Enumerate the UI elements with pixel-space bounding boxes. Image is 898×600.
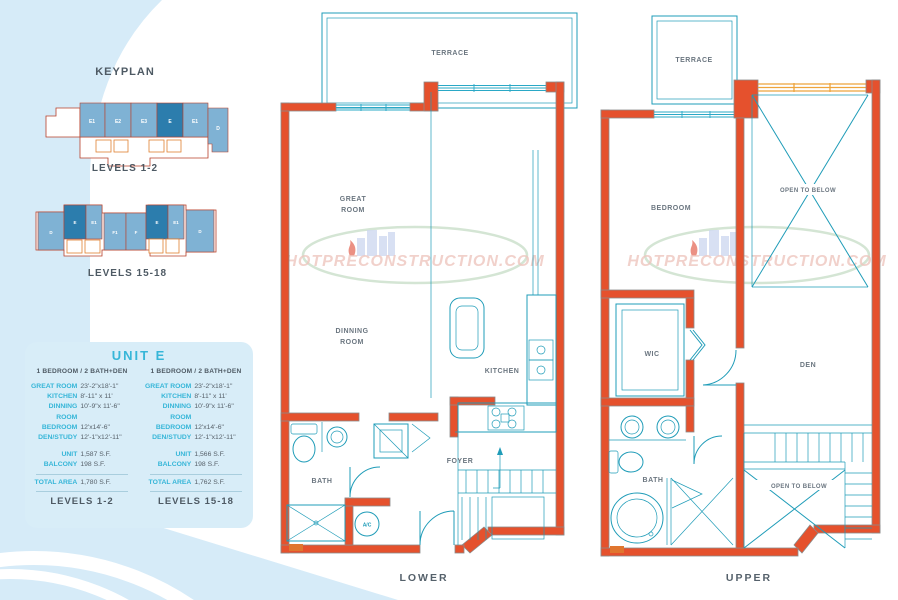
- wall: [736, 118, 744, 348]
- wall: [488, 527, 564, 535]
- window: [438, 84, 546, 92]
- wall: [601, 110, 609, 556]
- room-label: DEN/STUDY: [142, 433, 194, 443]
- shower-glass-line: [374, 424, 408, 458]
- keyplan-caption-15-18: LEVELS 15-18: [55, 268, 200, 279]
- terrace-outline: [322, 13, 577, 108]
- room-label: KITCHEN: [28, 392, 80, 402]
- tub-faucet: [649, 532, 653, 536]
- closet-shelving: [616, 304, 684, 396]
- keyplan-caption-1-2: LEVELS 1-2: [55, 163, 195, 174]
- watermark: HOTPRECONSTRUCTION.COM: [285, 227, 544, 283]
- railing: [758, 83, 866, 92]
- divider: [36, 474, 128, 475]
- toilet-tank: [609, 451, 618, 473]
- wall: [281, 103, 336, 111]
- sink-basin: [537, 346, 545, 354]
- keyplan-core: [149, 140, 164, 152]
- unit-spec-panel: UNIT E 1 BEDROOM / 2 BATH+DEN GREAT ROOM…: [25, 342, 253, 528]
- unit-type-subtitle: 1 BEDROOM / 2 BATH+DEN: [28, 368, 136, 375]
- keyplan-core: [167, 140, 181, 152]
- keyplan-unit-label: E2: [115, 119, 121, 125]
- door-swing: [412, 424, 430, 452]
- keyplan-left-wing: [46, 108, 80, 137]
- room-dimension: 12'-1"x12'-11": [80, 433, 136, 443]
- bath-sink: [327, 427, 347, 447]
- shower-drain-lines: [287, 505, 345, 541]
- divider: [150, 491, 242, 492]
- entry-door-arcs: [420, 511, 454, 545]
- ac-label: A/C: [363, 523, 372, 529]
- terrace-label: TERRACE: [431, 50, 468, 57]
- kitchen-cabinet-line: [533, 150, 538, 295]
- wall: [601, 398, 694, 406]
- bath-sink-basin: [331, 431, 343, 443]
- room-label: DINNING ROOM: [142, 402, 194, 422]
- open-to-below-label: OPEN TO BELOW: [780, 188, 836, 194]
- room-label: GREAT ROOM: [28, 382, 80, 392]
- wall: [450, 397, 495, 405]
- wall: [281, 103, 289, 553]
- terrace-label: TERRACE: [675, 57, 712, 64]
- keyplan-core: [96, 140, 111, 152]
- area-label: UNIT: [142, 450, 194, 460]
- room-label: DINNING ROOM: [28, 402, 80, 422]
- upper-caption: UPPER: [726, 572, 772, 584]
- window: [654, 111, 738, 118]
- total-area-value: 1,762 S.F.: [194, 478, 250, 488]
- keyplan-core: [67, 240, 82, 253]
- toilet-bowl: [293, 436, 315, 462]
- bathtub: [611, 493, 663, 543]
- keyplan-unit-label: E: [73, 220, 76, 225]
- spec-column-levels-15-18: 1 BEDROOM / 2 BATH+DEN GREAT ROOM23'-2"x…: [139, 363, 253, 507]
- den-door-arc: [703, 350, 736, 385]
- levels-caption: LEVELS 1-2: [28, 496, 136, 507]
- plan-stamp: [289, 544, 303, 551]
- lower-floor-plan: TERRACE HOTPRECONSTRUCTION.COM: [263, 0, 593, 600]
- wall: [686, 298, 694, 328]
- great-room-label: ROOM: [341, 207, 365, 214]
- area-value: 198 S.F.: [194, 460, 250, 470]
- room-label: DEN/STUDY: [28, 433, 80, 443]
- room-dimension: 23'-2"x18'-1": [194, 382, 250, 392]
- sink-basin: [537, 366, 545, 374]
- room-label: BEDROOM: [28, 423, 80, 433]
- area-label: UNIT: [28, 450, 80, 460]
- kitchen-label: KITCHEN: [485, 368, 520, 375]
- area-label: BALCONY: [142, 460, 194, 470]
- area-value: 1,566 S.F.: [194, 450, 250, 460]
- bath-label: BATH: [643, 477, 664, 484]
- open-to-below-stairs-label: OPEN TO BELOW: [771, 484, 827, 490]
- spec-column-levels-1-2: 1 BEDROOM / 2 BATH+DEN GREAT ROOM23'-2"x…: [25, 363, 139, 507]
- keyplan-unit-label: E1: [89, 119, 95, 125]
- room-dimension: 8'-11" x 11': [194, 392, 250, 402]
- levels-caption: LEVELS 15-18: [142, 496, 250, 507]
- keyplan-unit-label: F1: [112, 230, 118, 235]
- area-value: 1,587 S.F.: [80, 450, 136, 460]
- wall: [736, 383, 744, 548]
- bath-sink-basin: [661, 420, 675, 434]
- keyplan-title: KEYPLAN: [55, 66, 195, 78]
- keyplan-levels-15-18: D E E1 F1 F E E1 D: [30, 198, 232, 264]
- spec-columns: 1 BEDROOM / 2 BATH+DEN GREAT ROOM23'-2"x…: [25, 363, 253, 507]
- wall-diagonal: [462, 527, 492, 553]
- unit-type-subtitle: 1 BEDROOM / 2 BATH+DEN: [142, 368, 250, 375]
- kitchen-sink: [529, 360, 553, 380]
- stove-center: [501, 414, 509, 422]
- unit-title: UNIT E: [25, 342, 253, 363]
- bath-door-arc: [694, 436, 722, 464]
- keyplan-levels-1-2: E1 E2 E3 E E1 D: [40, 88, 232, 170]
- room-dimension: 10'-9"x 11'-6": [194, 402, 250, 422]
- total-area-value: 1,780 S.F.: [80, 478, 136, 488]
- divider: [36, 491, 128, 492]
- bath-sink: [657, 416, 679, 438]
- wall: [345, 498, 390, 506]
- bath-sink-basin: [625, 420, 639, 434]
- room-dimension: 12'-1"x12'-11": [194, 433, 250, 443]
- bedroom-label: BEDROOM: [651, 205, 691, 212]
- stair-treads: [775, 433, 863, 462]
- keyplan-unit-label: E1: [91, 220, 97, 225]
- wic-label: WIC: [644, 351, 659, 358]
- wall: [601, 548, 798, 556]
- lower-caption: LOWER: [399, 572, 448, 584]
- wall: [686, 406, 694, 432]
- arrowhead-icon: [497, 447, 503, 455]
- kitchen-island: [458, 403, 556, 432]
- shower-wall-line: [667, 478, 671, 545]
- kitchen-sink: [529, 340, 553, 360]
- bathtub-inner: [617, 499, 657, 537]
- room-dimension: 8'-11" x 11': [80, 392, 136, 402]
- wall: [455, 545, 464, 553]
- watermark-text: HOTPRECONSTRUCTION.COM: [285, 253, 544, 270]
- wall: [389, 413, 438, 421]
- keyplan-unit-label: E3: [141, 119, 147, 125]
- room-dimension: 12'x14'-6": [80, 423, 136, 433]
- keyplan-unit-label: E1: [192, 119, 198, 125]
- wall: [281, 413, 359, 421]
- keyplan-unit-label: D: [216, 126, 220, 132]
- toilet-bowl: [619, 452, 643, 472]
- kitchen-counter: [527, 295, 556, 405]
- plan-stamp: [610, 546, 624, 553]
- wall: [556, 82, 564, 535]
- keyplan-unit-label: E: [155, 220, 158, 225]
- wall: [872, 80, 880, 533]
- foyer-label: FOYER: [447, 458, 474, 465]
- room-label: BEDROOM: [142, 423, 194, 433]
- keyplan-core: [166, 239, 179, 253]
- bath-door-arc: [350, 467, 380, 497]
- total-area-label: TOTAL AREA: [28, 478, 80, 488]
- keyplan-core: [149, 239, 163, 253]
- wall: [601, 110, 654, 118]
- great-room-label: GREAT: [340, 196, 367, 203]
- room-dimension: 23'-2"x18'-1": [80, 382, 136, 392]
- keyplan-core: [114, 140, 128, 152]
- watermark: HOTPRECONSTRUCTION.COM: [627, 227, 886, 283]
- room-dimension: 12'x14'-6": [194, 423, 250, 433]
- dinning-room-label: DINNING: [335, 328, 368, 335]
- armchair: [450, 298, 484, 358]
- bath-sink: [621, 416, 643, 438]
- room-label: GREAT ROOM: [142, 382, 194, 392]
- burner: [492, 408, 500, 416]
- stair-treads: [466, 470, 543, 493]
- toilet-tank: [291, 424, 317, 434]
- keyplan-unit-label: E1: [173, 220, 179, 225]
- watermark-text: HOTPRECONSTRUCTION.COM: [627, 253, 886, 270]
- bath-label: BATH: [312, 478, 333, 485]
- stove: [488, 406, 524, 430]
- room-dimension: 10'-9"x 11'-6": [80, 402, 136, 422]
- divider: [150, 474, 242, 475]
- dinning-room-label: ROOM: [340, 339, 364, 346]
- keyplan-core: [85, 240, 100, 253]
- area-value: 198 S.F.: [80, 460, 136, 470]
- shower-glass-cross: [671, 478, 733, 545]
- burner: [492, 420, 500, 428]
- area-label: BALCONY: [28, 460, 80, 470]
- closet-shelving-inner: [622, 310, 678, 390]
- upper-floor-plan: TERRACE HOTPRECONSTRUCTION.COM: [588, 0, 898, 600]
- window: [336, 104, 410, 111]
- total-area-label: TOTAL AREA: [142, 478, 194, 488]
- den-label: DEN: [800, 362, 816, 369]
- room-label: KITCHEN: [142, 392, 194, 402]
- wall: [601, 290, 694, 298]
- double-door-chevron: [690, 330, 705, 360]
- floorplan-page: KEYPLAN E1 E2 E3 E E1 D LEVELS 1-2: [0, 0, 898, 600]
- keyplan-unit-label: F: [135, 230, 138, 235]
